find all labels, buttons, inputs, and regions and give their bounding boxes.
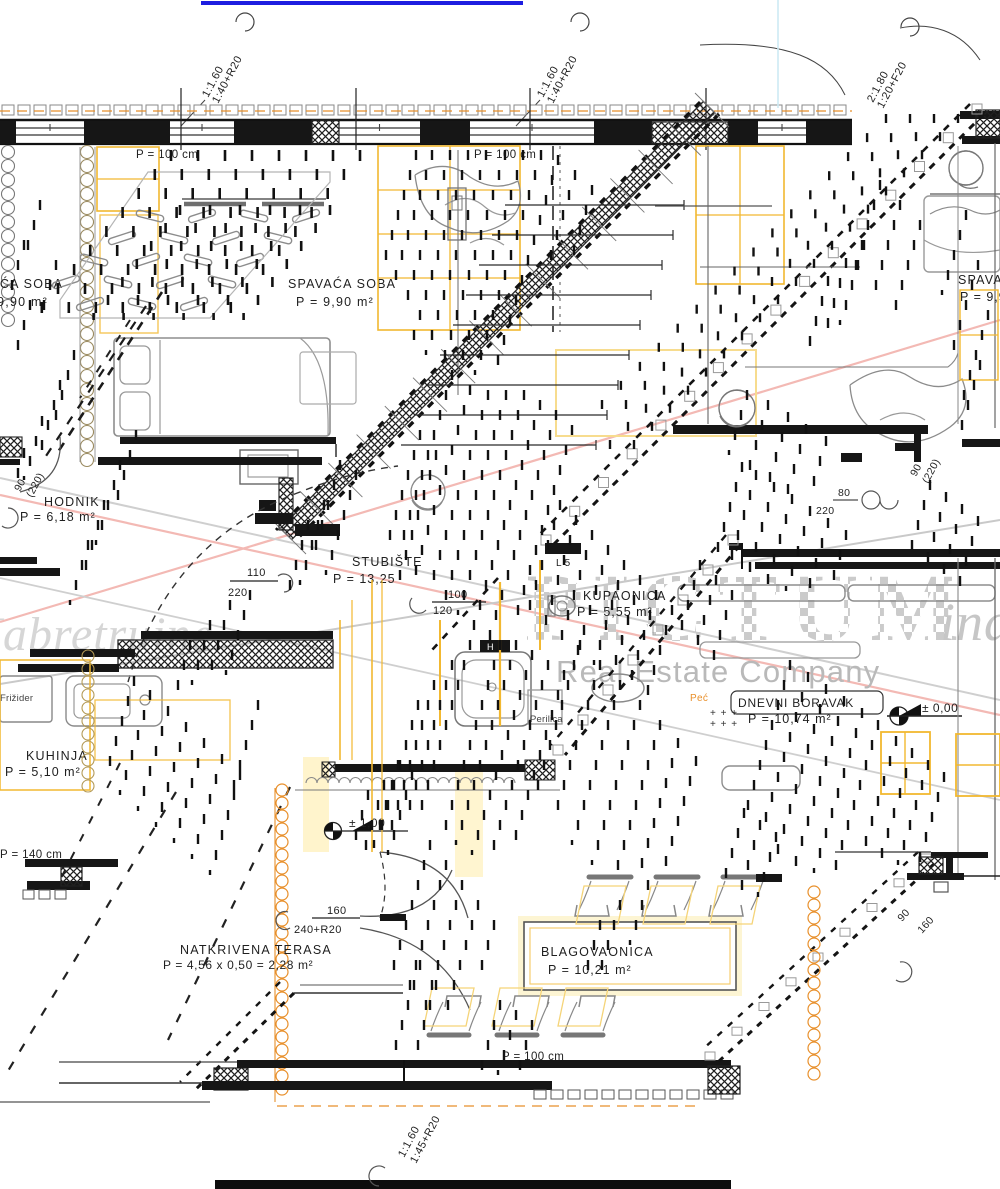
svg-text:Perilica: Perilica: [530, 714, 563, 725]
svg-text:P = 10,74 m²: P = 10,74 m²: [748, 712, 832, 726]
svg-text:+ + +: + + +: [710, 708, 738, 719]
svg-text:120: 120: [433, 605, 453, 617]
svg-text:HODNIK: HODNIK: [44, 495, 100, 509]
svg-text:P = 4,56 x 0,50 = 2,28 m²: P = 4,56 x 0,50 = 2,28 m²: [163, 958, 313, 972]
svg-text:H: H: [487, 642, 494, 652]
svg-text:160: 160: [327, 905, 347, 917]
svg-text:220: 220: [228, 587, 248, 599]
svg-text:P = 100 cm: P = 100 cm: [502, 1051, 564, 1063]
svg-text:Real Estate Company: Real Estate Company: [556, 654, 880, 689]
svg-text:Peć: Peć: [690, 693, 708, 704]
svg-text:+ + +: + + +: [710, 719, 738, 730]
svg-text:P = 9,90 m²: P = 9,90 m²: [296, 295, 374, 309]
svg-text:80: 80: [838, 487, 850, 499]
svg-text:110: 110: [247, 567, 266, 579]
svg-text:P = 6,18 m²: P = 6,18 m²: [20, 510, 96, 524]
svg-text:P = 5,10 m²: P = 5,10 m²: [5, 765, 81, 779]
svg-text:SPAVAĆA: SPAVAĆA: [958, 272, 1000, 287]
svg-text:240+R20: 240+R20: [294, 924, 342, 936]
svg-text:STUBIŠTE: STUBIŠTE: [352, 554, 423, 569]
svg-text:± 0,00: ± 0,00: [922, 701, 958, 715]
svg-text:Frižider: Frižider: [0, 693, 33, 704]
svg-text:P = 100 cm: P = 100 cm: [136, 149, 198, 161]
svg-text:BLAGOVAONICA: BLAGOVAONICA: [541, 945, 654, 959]
svg-text:P = 5,55 m²: P = 5,55 m²: [577, 605, 653, 619]
svg-text:DNEVNI BORAVAK: DNEVNI BORAVAK: [738, 696, 854, 710]
svg-text:KUHINJA: KUHINJA: [26, 749, 88, 763]
svg-text:NATKRIVENA TERASA: NATKRIVENA TERASA: [180, 943, 332, 957]
svg-text:P = 10,21 m²: P = 10,21 m²: [548, 963, 632, 977]
svg-text:P = 13,25: P = 13,25: [333, 572, 396, 586]
svg-text:220: 220: [816, 505, 834, 517]
